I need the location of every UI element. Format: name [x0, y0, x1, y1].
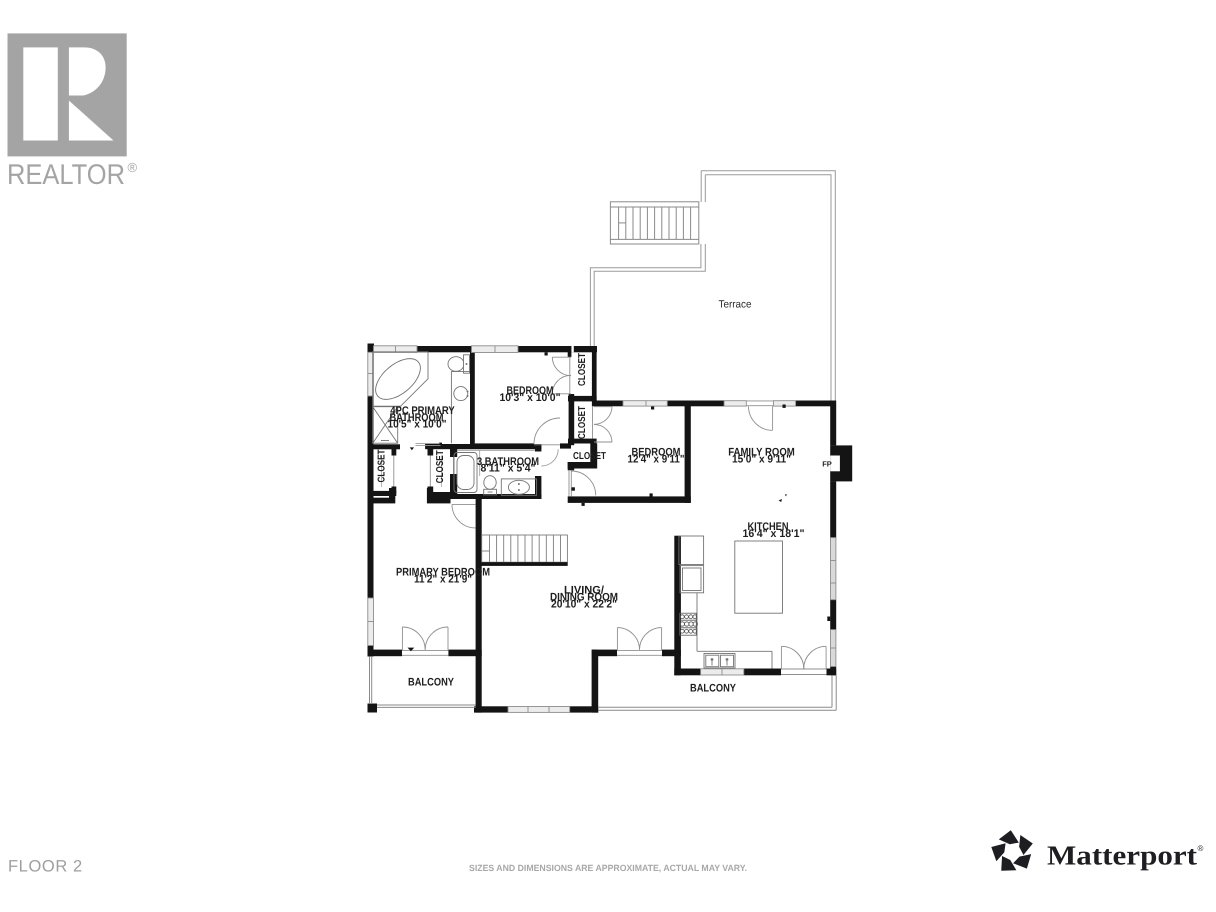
svg-text:BALCONY: BALCONY [408, 677, 455, 689]
svg-text:CLOSET: CLOSET [376, 450, 387, 483]
svg-text:®: ® [1198, 844, 1204, 853]
svg-text:FLOOR 2: FLOOR 2 [8, 858, 83, 876]
svg-text:15'0" x 9'11": 15'0" x 9'11" [732, 453, 791, 465]
svg-text:Matterport: Matterport [1047, 840, 1198, 871]
svg-text:CLOSET: CLOSET [577, 406, 588, 439]
svg-text:SIZES AND DIMENSIONS ARE APPRO: SIZES AND DIMENSIONS ARE APPROXIMATE, AC… [469, 863, 747, 873]
svg-text:CLOSET: CLOSET [577, 353, 588, 386]
svg-text:REALTOR: REALTOR [7, 159, 125, 191]
svg-text:CLOSET: CLOSET [435, 450, 446, 483]
svg-text:BALCONY: BALCONY [690, 683, 737, 695]
svg-text:16'4" x 18'1": 16'4" x 18'1" [743, 528, 805, 540]
svg-text:8'11" x 5'4": 8'11" x 5'4" [481, 463, 536, 475]
svg-text:®: ® [128, 160, 138, 175]
svg-text:11'2" x 21'9": 11'2" x 21'9" [414, 573, 472, 585]
svg-text:CLOSET: CLOSET [573, 451, 606, 462]
svg-text:FP: FP [822, 460, 832, 469]
svg-text:Terrace: Terrace [719, 299, 752, 311]
svg-text:10'5" x 10'0": 10'5" x 10'0" [388, 419, 447, 431]
svg-text:20'10" x 22'2": 20'10" x 22'2" [551, 599, 617, 611]
svg-text:12'4" x 9'11": 12'4" x 9'11" [628, 453, 685, 465]
svg-text:10'3" x 10'0": 10'3" x 10'0" [500, 392, 561, 404]
